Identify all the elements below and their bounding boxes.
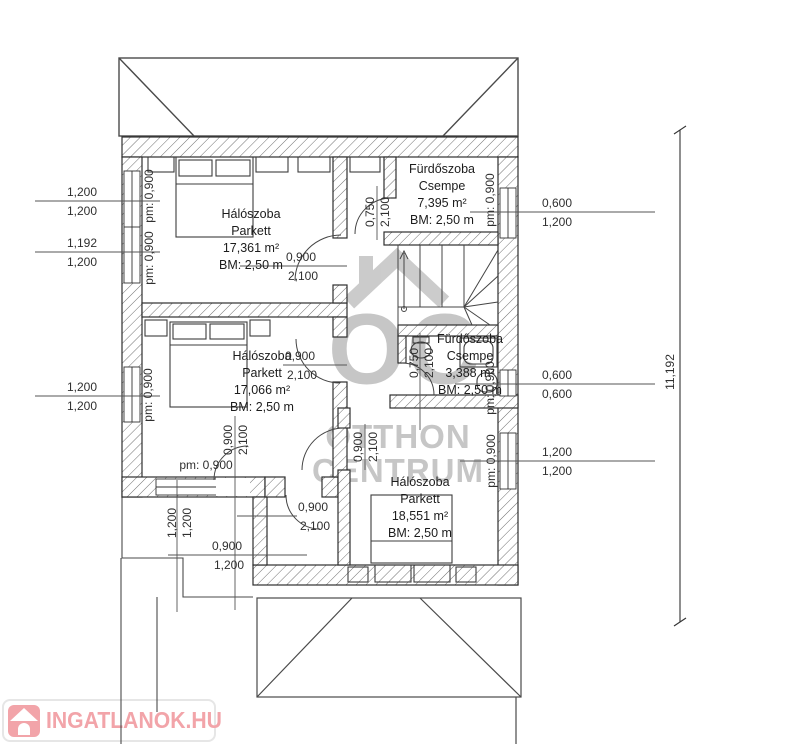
dim-door-bath2-w: 0,750 xyxy=(408,348,420,378)
dim-right-low-b: 1,200 xyxy=(542,465,572,477)
dim-right-mid-a: 0,600 xyxy=(542,369,572,381)
dim-balcony-b: 1,200 xyxy=(181,508,193,538)
room-floor: Parkett xyxy=(219,223,283,240)
dim-door-bed3-w: 0,900 xyxy=(352,432,364,462)
dim-door-bed1-h: 2,100 xyxy=(288,270,318,282)
room-height: BM: 2,50 m xyxy=(409,212,475,229)
watermark-roof-icon xyxy=(349,256,444,303)
dim-door-hall-h: 2,100 xyxy=(300,520,330,532)
parapet-bottom: pm: 0,900 xyxy=(179,459,232,471)
dim-left-mid-b: 1,200 xyxy=(67,256,97,268)
dim-door-bed1-w: 0,900 xyxy=(286,251,316,263)
dim-door-balcony-w: 0,900 xyxy=(222,425,234,455)
floorplan-page: OC OTTHON CENTRUM INGATLANOK.HU xyxy=(0,0,800,744)
room-label-bedroom-bottom: Hálószoba Parkett 18,551 m² BM: 2,50 m xyxy=(388,474,452,542)
parapet-right-a: pm: 0,900 xyxy=(484,173,496,226)
dim-door-bath2-h: 2,100 xyxy=(423,348,435,378)
dim-left-mid-a: 1,192 xyxy=(67,237,97,249)
dim-left-low-a: 1,200 xyxy=(67,381,97,393)
room-area: 18,551 m² xyxy=(388,508,452,525)
room-name: Fürdőszoba xyxy=(409,161,475,178)
dim-door-bed2-h: 2,100 xyxy=(287,369,317,381)
room-floor: Parkett xyxy=(388,491,452,508)
room-height: BM: 2,50 m xyxy=(230,399,294,416)
parapet-right-b: pm: 0,900 xyxy=(484,361,496,414)
room-label-bedroom-top: Hálószoba Parkett 17,361 m² BM: 2,50 m xyxy=(219,206,283,274)
room-height: BM: 2,50 m xyxy=(388,525,452,542)
dim-right-top-a: 0,600 xyxy=(542,197,572,209)
dim-right-low-a: 1,200 xyxy=(542,446,572,458)
dim-door-bath1-h: 2,100 xyxy=(379,197,391,227)
room-name: Fürdőszoba xyxy=(437,331,503,348)
room-label-bathroom-top: Fürdőszoba Csempe 7,395 m² BM: 2,50 m xyxy=(409,161,475,229)
dim-left-top-b: 1,200 xyxy=(67,205,97,217)
dim-door-terrace-w: 0,900 xyxy=(212,540,242,552)
dim-door-bed3-h: 2,100 xyxy=(367,432,379,462)
floorplan-drawing xyxy=(0,0,800,744)
room-area: 17,361 m² xyxy=(219,240,283,257)
roof-bottom-outline xyxy=(257,598,521,744)
parapet-left-a: pm: 0,900 xyxy=(143,169,155,222)
staircase xyxy=(398,245,498,325)
room-name: Hálószoba xyxy=(219,206,283,223)
parapet-left-b: pm: 0,900 xyxy=(143,231,155,284)
room-floor: Csempe xyxy=(409,178,475,195)
dim-right-mid-b: 0,600 xyxy=(542,388,572,400)
dim-door-hall-w: 0,900 xyxy=(298,501,328,513)
dim-left-low-b: 1,200 xyxy=(67,400,97,412)
dim-door-bath1-w: 0,750 xyxy=(364,197,376,227)
dim-overall-height: 11,192 xyxy=(664,354,676,390)
dim-door-terrace-h: 1,200 xyxy=(214,559,244,571)
parapet-right-c: pm: 0,900 xyxy=(485,434,497,487)
roof-top-outline xyxy=(119,58,518,136)
parapet-left-c: pm: 0,900 xyxy=(142,368,154,421)
dim-door-balcony-h: 2,100 xyxy=(237,425,249,455)
room-area: 17,066 m² xyxy=(230,382,294,399)
dim-left-top-a: 1,200 xyxy=(67,186,97,198)
room-name: Hálószoba xyxy=(388,474,452,491)
room-floor: Parkett xyxy=(230,365,294,382)
room-height: BM: 2,50 m xyxy=(219,257,283,274)
room-area: 7,395 m² xyxy=(409,195,475,212)
dim-right-top-b: 1,200 xyxy=(542,216,572,228)
dim-door-bed2-w: 0,900 xyxy=(285,350,315,362)
dim-balcony-a: 1,200 xyxy=(166,508,178,538)
